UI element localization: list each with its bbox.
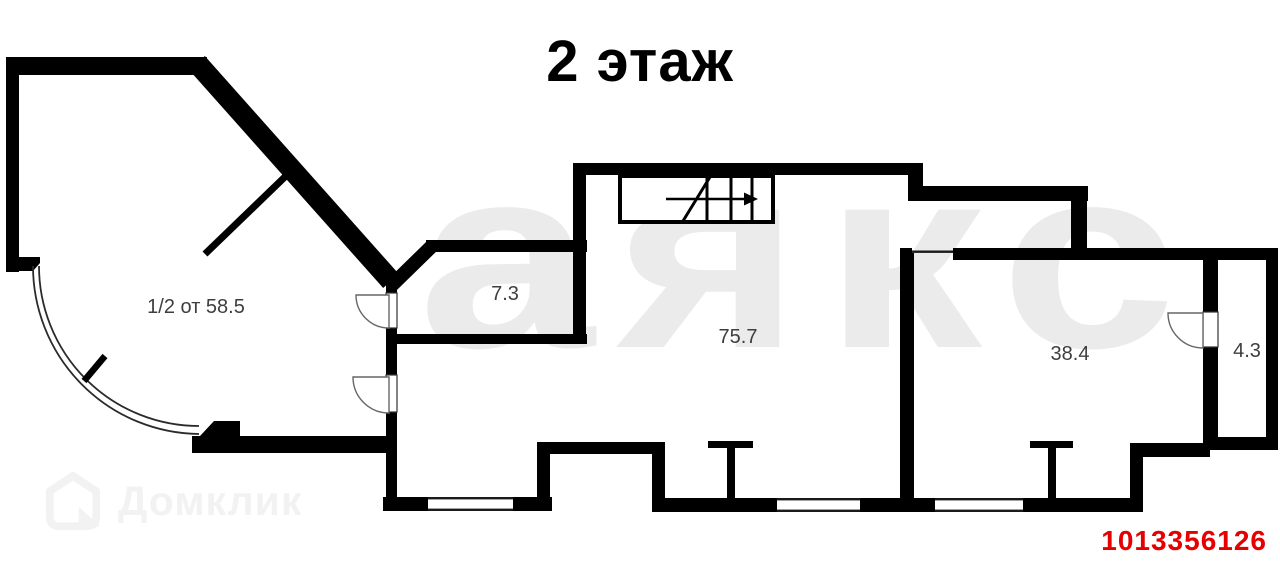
floor-plan-page: аякс Домклик <box>0 0 1280 562</box>
window-line <box>777 510 860 512</box>
diagonal-wall <box>197 63 391 281</box>
arc-tick <box>84 356 105 381</box>
wall-segment <box>860 498 935 512</box>
wall-segment <box>652 498 777 512</box>
room-area-label: 75.7 <box>719 326 758 348</box>
t-stub-stem <box>1048 448 1056 499</box>
listing-id: 1013356126 <box>1101 525 1267 557</box>
t-stub-stem <box>727 448 735 499</box>
wall-segment <box>573 163 923 175</box>
wall-tab <box>200 421 240 436</box>
window-line <box>935 498 1023 500</box>
wall-segment <box>386 279 397 293</box>
wall-segment <box>1023 498 1143 512</box>
window-line <box>912 251 953 253</box>
window-line <box>428 509 513 511</box>
door-swing-arc <box>1168 313 1203 348</box>
wall-segment <box>1203 254 1218 312</box>
room-area-label: 4.3 <box>1233 340 1261 362</box>
wall-stub <box>19 257 40 271</box>
floor-title: 2 этаж <box>0 28 1280 95</box>
door-swing-arc <box>356 295 389 328</box>
wall-segment <box>900 253 914 498</box>
wall-segment <box>386 412 397 498</box>
window-line <box>935 510 1023 512</box>
room-labels: 1/2 от 58.5 7.3 75.7 38.4 4.3 <box>147 283 1261 365</box>
door-opening <box>1203 312 1218 347</box>
stairs <box>620 176 773 222</box>
walls <box>6 57 1278 512</box>
wall-segment <box>426 240 587 252</box>
wall-segment <box>537 442 665 454</box>
wall-segment <box>908 186 1088 201</box>
wall-segment <box>192 436 388 453</box>
curved-wall <box>33 266 199 434</box>
room-area-label: 1/2 от 58.5 <box>147 296 245 318</box>
wall-segment <box>953 248 1270 260</box>
window-line <box>428 497 513 499</box>
wall-segment <box>513 497 552 511</box>
wall-segment <box>573 163 586 344</box>
wall-segment <box>386 334 587 344</box>
wall-segment <box>652 453 665 512</box>
wall-segment <box>386 328 397 375</box>
partition-line <box>205 171 291 254</box>
room-area-label: 38.4 <box>1051 343 1090 365</box>
room-area-label: 7.3 <box>491 283 519 305</box>
wall-segment <box>1266 248 1278 450</box>
curved-wall-inner-arc <box>39 266 199 426</box>
door-swing-arc <box>353 377 389 413</box>
curved-wall-outer-arc <box>33 266 199 434</box>
wall-segment <box>1203 347 1218 447</box>
wall-t-stubs <box>708 441 1073 499</box>
wall-segment <box>537 442 550 504</box>
wall-segment <box>383 497 428 511</box>
window-line <box>777 498 860 500</box>
t-stub-cap <box>1030 441 1073 448</box>
t-stub-cap <box>708 441 753 448</box>
